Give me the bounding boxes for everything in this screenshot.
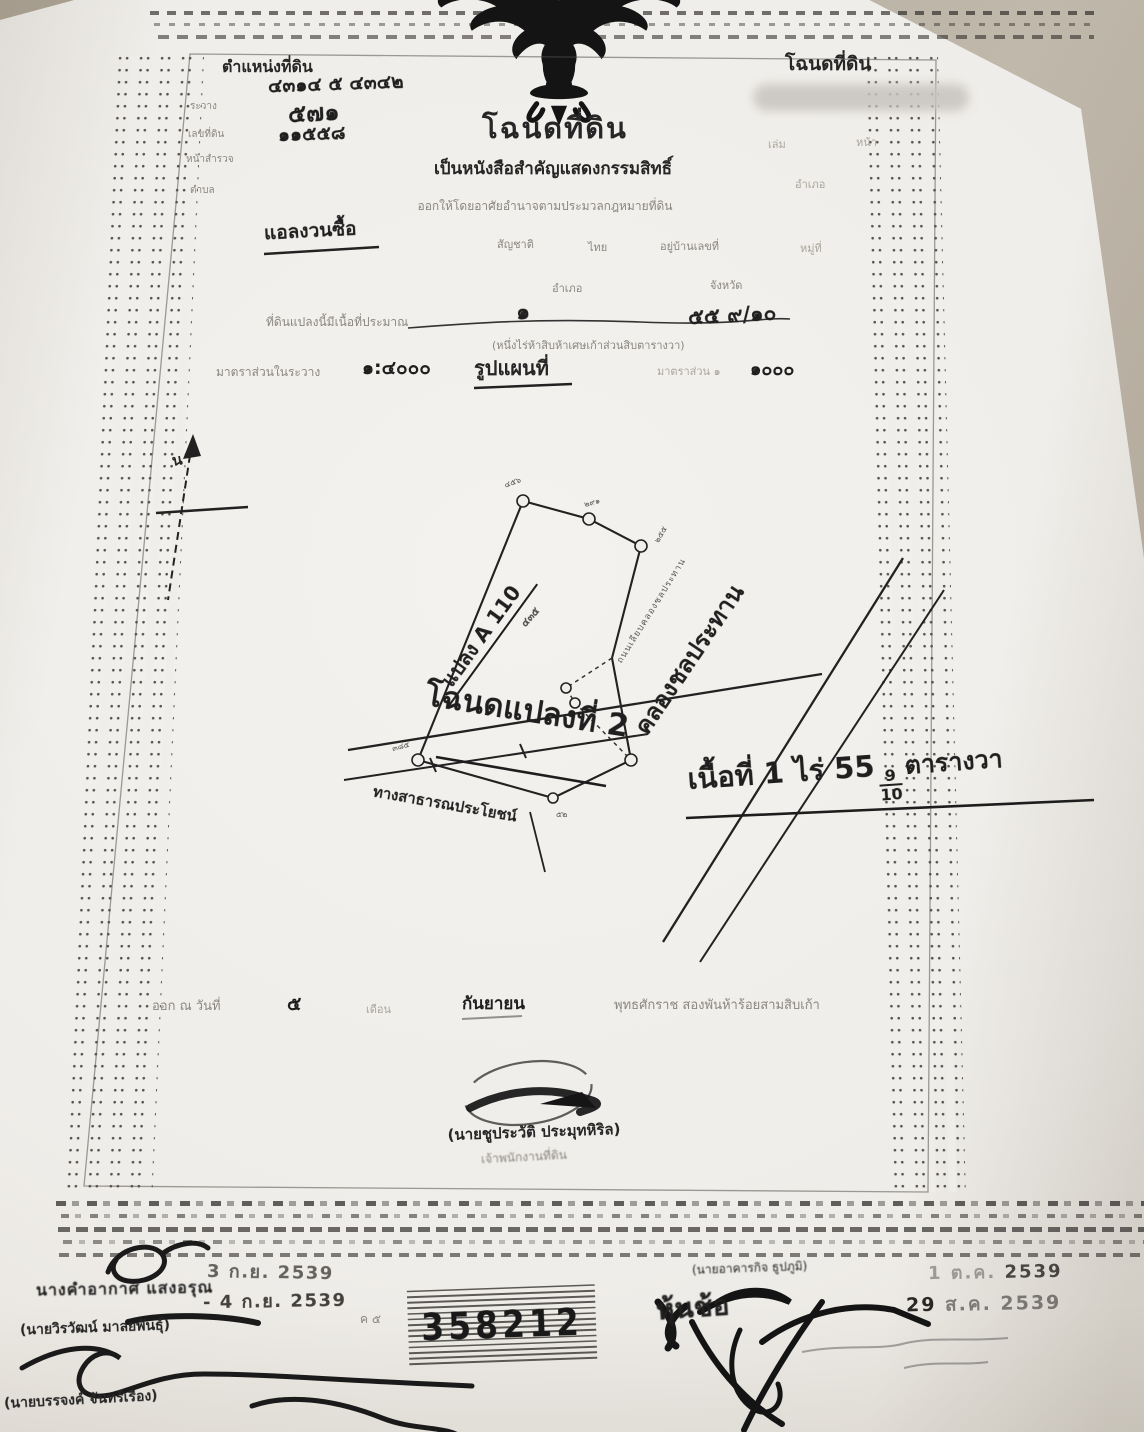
footer-left-name-stamp: นางคำอากาศ แสงอรุณ bbox=[36, 1278, 214, 1299]
nationality-value: ไทย bbox=[588, 242, 607, 255]
area-note-fraction: 910 bbox=[879, 767, 904, 803]
issue-month: กันยายน bbox=[462, 995, 525, 1015]
address-label: อยู่บ้านเลขที่ bbox=[660, 241, 719, 254]
footer-date-stamp-3-year: 2539 bbox=[1004, 1261, 1062, 1283]
amphoe-label: อำเภอ bbox=[552, 283, 582, 296]
area-spelled-out: (หนึ่งไร่ห้าสิบห้าเศษเก้าส่วนสิบตารางวา) bbox=[492, 340, 685, 353]
month-smudge-underline bbox=[462, 1016, 522, 1019]
scale-value: ๑:๔๐๐๐ bbox=[362, 358, 431, 380]
area-hand-rai: ๑ bbox=[515, 300, 531, 326]
footer-signature-2 bbox=[22, 1348, 472, 1396]
footer-right-light-scribble bbox=[802, 1338, 1008, 1368]
owner-name-underline bbox=[264, 247, 379, 254]
footer-signature-3 bbox=[252, 1399, 466, 1432]
plot-boundary bbox=[418, 501, 641, 798]
deed-box-title: โฉนดที่ดิน bbox=[785, 54, 871, 76]
changwat-label: จังหวัด bbox=[710, 280, 742, 293]
map-title-underline bbox=[474, 384, 572, 388]
footer-date-stamp-4: 29 ส.ค. 2539 bbox=[906, 1293, 1062, 1318]
area-sentence-prefix: ที่ดินแปลงนี้มีเนื้อที่ประมาณ bbox=[266, 316, 408, 330]
field-label-rawang: ระวาง bbox=[190, 101, 217, 113]
area-note-numerator: 9 bbox=[884, 768, 896, 785]
deed-box-volume-label: เล่ม bbox=[768, 139, 786, 152]
issue-day: ๕ bbox=[287, 994, 301, 1016]
footer-date-stamp-1: 3 ก.ย. 2539 bbox=[207, 1262, 334, 1285]
footer-right-hand-note: หุ้นช้อ bbox=[655, 1289, 730, 1326]
deed-box-page-label: หน้า bbox=[856, 137, 877, 150]
north-arrow-crossbar bbox=[156, 507, 248, 513]
area-note-suffix: ตารางวา bbox=[904, 744, 1004, 780]
area-note-denominator: 10 bbox=[880, 783, 904, 804]
deed-box-amphoe-label: อำเภอ bbox=[795, 179, 825, 192]
bottom-road-tick-2 bbox=[520, 744, 526, 758]
field-label-survey-page: หน้าสำรวจ bbox=[186, 154, 234, 166]
footer-signature-1 bbox=[108, 1243, 208, 1281]
footer-date-stamp-4-rest: ส.ค. 2539 bbox=[945, 1292, 1062, 1316]
field-label-tambon: ตำบล bbox=[190, 185, 215, 197]
map-section-title: รูปแผนที่ bbox=[474, 357, 549, 380]
field-value-survey-page: ๑๑๕๕๘ bbox=[278, 123, 346, 147]
field-label-parcel-no: เลขที่ดิน bbox=[188, 129, 224, 141]
map-scale-value: ๑๐๐๐ bbox=[750, 360, 794, 381]
boundary-marker-circles bbox=[412, 495, 647, 803]
map-scale-label: มาตราส่วน ๑ bbox=[657, 366, 721, 379]
photo-of-thai-land-deed: { "header_left": { "title": "ตำแหน่งที่ด… bbox=[0, 0, 1144, 1432]
footer-date-stamp-3-prefix: 1 ต.ค. bbox=[928, 1262, 997, 1284]
footer-date-stamp-3: 1 ต.ค. 2539 bbox=[928, 1262, 1063, 1285]
document-issue-authority-line: ออกให้โดยอาศัยอำนาจตามประมวลกฎหมายที่ดิน bbox=[418, 200, 673, 214]
serial-number: 358212 bbox=[420, 1299, 583, 1348]
issue-month-label: เดือน bbox=[366, 1004, 391, 1017]
issue-era-year: พุทธศักราช สองพันห้าร้อยสามสิบเก้า bbox=[614, 999, 820, 1014]
footer-date-stamp-2: - 4 ก.ย. 2539 bbox=[203, 1291, 347, 1314]
footer-check-note: ค ๕ bbox=[360, 1313, 381, 1327]
vertex-number-5: ๕๒ bbox=[556, 810, 567, 819]
area-hand-wah: ๕๕ ๙/๑๐ bbox=[687, 301, 776, 330]
document-title: โฉนดที่ดิน bbox=[482, 112, 628, 145]
scale-label: มาตราส่วนในระวาง bbox=[216, 366, 320, 380]
moo-label: หมู่ที่ bbox=[800, 243, 822, 256]
nationality-label: สัญชาติ bbox=[497, 239, 534, 252]
footer-date-stamp-4-day: 29 bbox=[906, 1294, 937, 1317]
north-arrow-head bbox=[183, 434, 201, 459]
plot-spur-line bbox=[530, 812, 545, 872]
serial-number-stamp: 358212 bbox=[407, 1283, 598, 1366]
redacted-deed-number bbox=[753, 84, 969, 111]
issue-line-prefix: ออก ณ วันที่ bbox=[152, 1000, 221, 1015]
document-subtitle: เป็นหนังสือสำคัญแสดงกรรมสิทธิ์ bbox=[434, 160, 672, 180]
